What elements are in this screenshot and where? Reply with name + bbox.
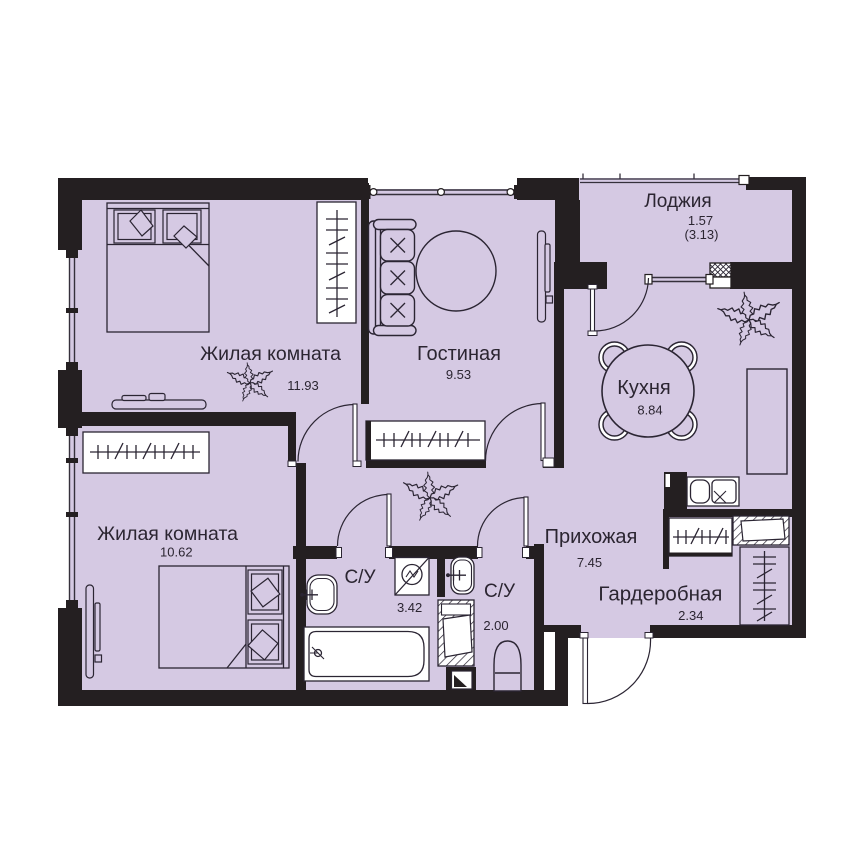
svg-text:С/У: С/У [344, 567, 376, 588]
svg-text:Гардеробная: Гардеробная [598, 583, 722, 606]
svg-text:Кухня: Кухня [617, 377, 671, 399]
svg-text:2.34: 2.34 [678, 608, 703, 623]
svg-text:(3.13): (3.13) [685, 227, 719, 242]
svg-text:9.53: 9.53 [446, 367, 471, 382]
svg-text:Гостиная: Гостиная [417, 343, 501, 365]
svg-text:11.93: 11.93 [287, 378, 319, 393]
svg-text:2.00: 2.00 [483, 618, 508, 633]
svg-text:3.42: 3.42 [397, 600, 422, 615]
svg-text:Жилая комната: Жилая комната [200, 343, 341, 365]
svg-text:Жилая комната: Жилая комната [97, 523, 238, 545]
svg-text:1.57: 1.57 [688, 213, 713, 228]
svg-text:10.62: 10.62 [160, 545, 193, 560]
svg-text:С/У: С/У [484, 581, 516, 602]
svg-text:8.84: 8.84 [637, 403, 662, 418]
svg-text:Лоджия: Лоджия [644, 191, 711, 212]
svg-text:Прихожая: Прихожая [545, 526, 638, 548]
svg-text:7.45: 7.45 [577, 555, 602, 570]
